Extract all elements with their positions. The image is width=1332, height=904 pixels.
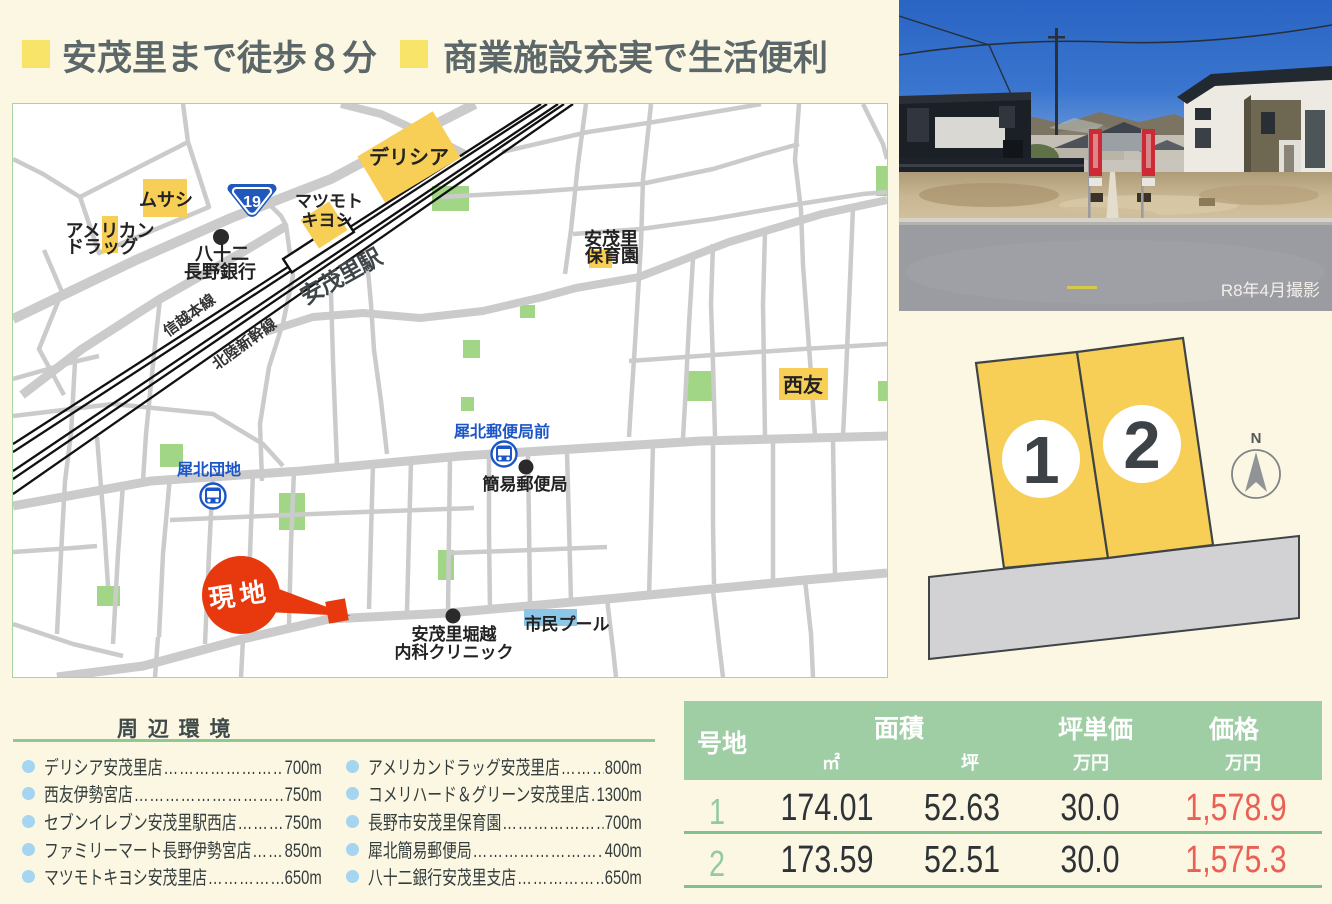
svg-text:西友: 西友	[783, 373, 823, 397]
svg-text:マツモト: マツモト	[295, 192, 363, 211]
svg-text:N: N	[1251, 430, 1262, 447]
svg-text:長野銀行: 長野銀行	[184, 261, 256, 282]
svg-text:簡易郵便局: 簡易郵便局	[482, 474, 568, 494]
svg-text:保育園: 保育園	[584, 245, 639, 266]
svg-text:安茂里堀越: 安茂里堀越	[412, 624, 498, 644]
svg-text:19: 19	[243, 194, 261, 211]
svg-text:内科クリニック: 内科クリニック	[395, 642, 514, 662]
svg-text:キヨシ: キヨシ	[302, 211, 353, 230]
svg-text:ドラッグ: ドラッグ	[66, 236, 138, 257]
svg-text:市民プール: 市民プール	[525, 614, 610, 634]
svg-text:2: 2	[1123, 408, 1160, 483]
svg-text:1: 1	[1022, 423, 1059, 498]
svg-text:R8年4月撮影: R8年4月撮影	[1221, 281, 1320, 300]
svg-text:犀北郵便局前: 犀北郵便局前	[453, 422, 550, 441]
svg-text:犀北団地: 犀北団地	[176, 460, 241, 479]
svg-text:デリシア: デリシア	[369, 145, 449, 169]
svg-text:八十二: 八十二	[195, 243, 249, 264]
svg-text:ムサシ: ムサシ	[139, 190, 193, 210]
